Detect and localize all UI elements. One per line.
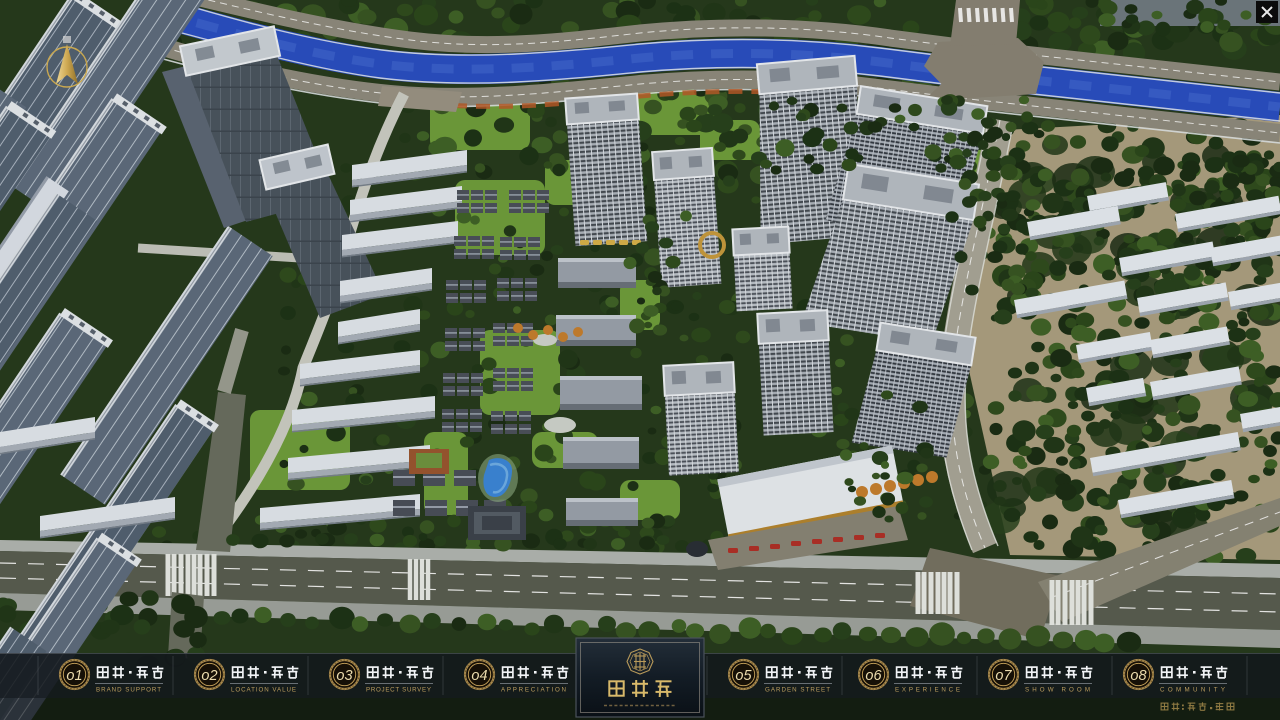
svg-text:BRAND SUPPORT: BRAND SUPPORT [96,687,162,694]
svg-text:o7: o7 [995,668,1012,684]
svg-text:o6: o6 [865,668,882,684]
svg-text:o8: o8 [1130,668,1146,684]
svg-text:SHOW ROOM: SHOW ROOM [1025,687,1091,694]
svg-text:o5: o5 [735,668,752,684]
svg-text:o3: o3 [336,668,352,684]
svg-text:o4: o4 [471,668,487,684]
svg-text:LOCATION VALUE: LOCATION VALUE [231,687,297,694]
svg-text:APPRECIATION: APPRECIATION [501,687,567,694]
svg-text:o2: o2 [201,668,217,684]
svg-text:PROJECT SURVEY: PROJECT SURVEY [366,687,432,694]
svg-text:EXPERIENCE: EXPERIENCE [895,687,961,694]
svg-text:o1: o1 [66,668,82,684]
svg-text:GARDEN STREET: GARDEN STREET [765,687,831,694]
svg-text:COMMUNITY: COMMUNITY [1160,687,1226,694]
